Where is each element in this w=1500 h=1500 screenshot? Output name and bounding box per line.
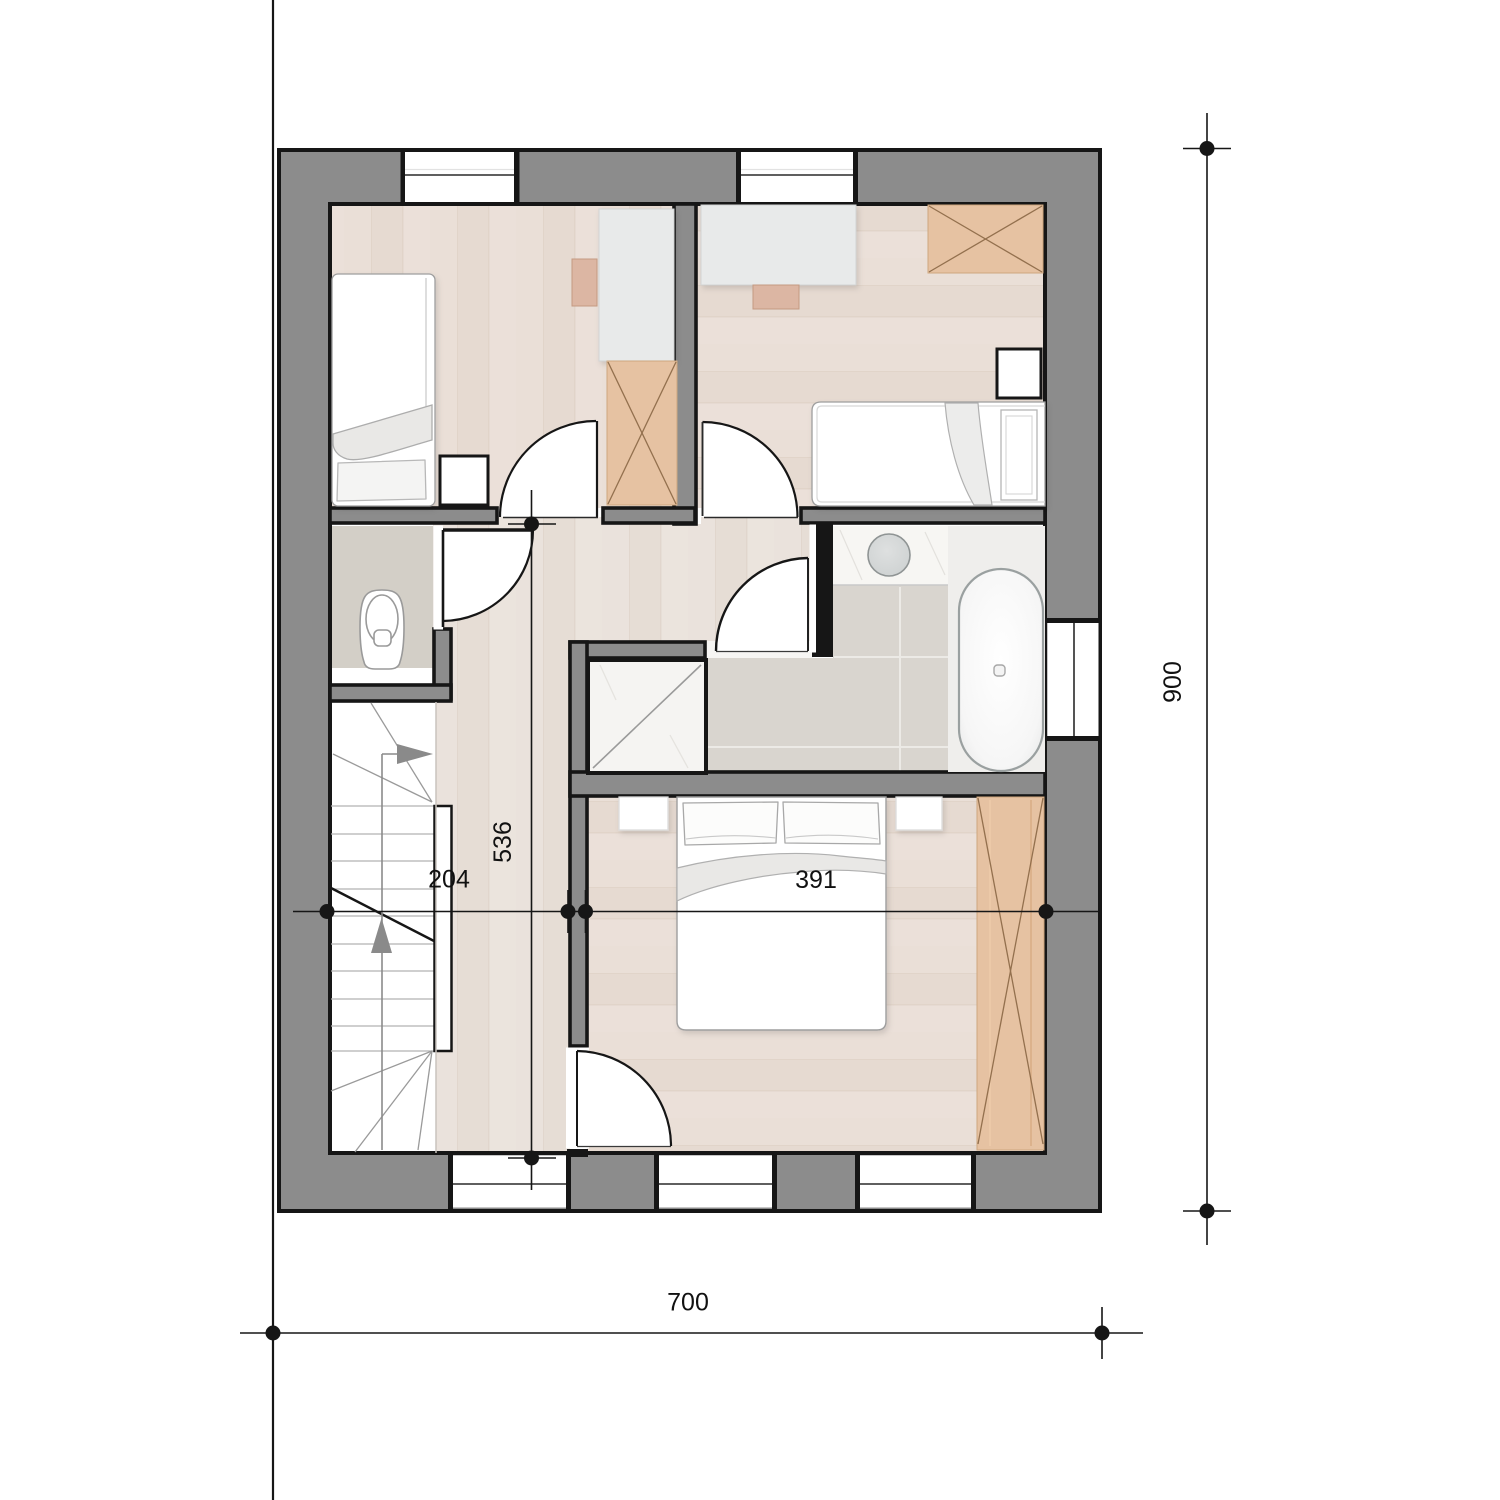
svg-text:536: 536 <box>489 821 517 863</box>
svg-text:700: 700 <box>667 1289 709 1317</box>
svg-text:391: 391 <box>795 866 837 894</box>
svg-text:204: 204 <box>428 866 470 894</box>
svg-text:900: 900 <box>1159 661 1187 703</box>
